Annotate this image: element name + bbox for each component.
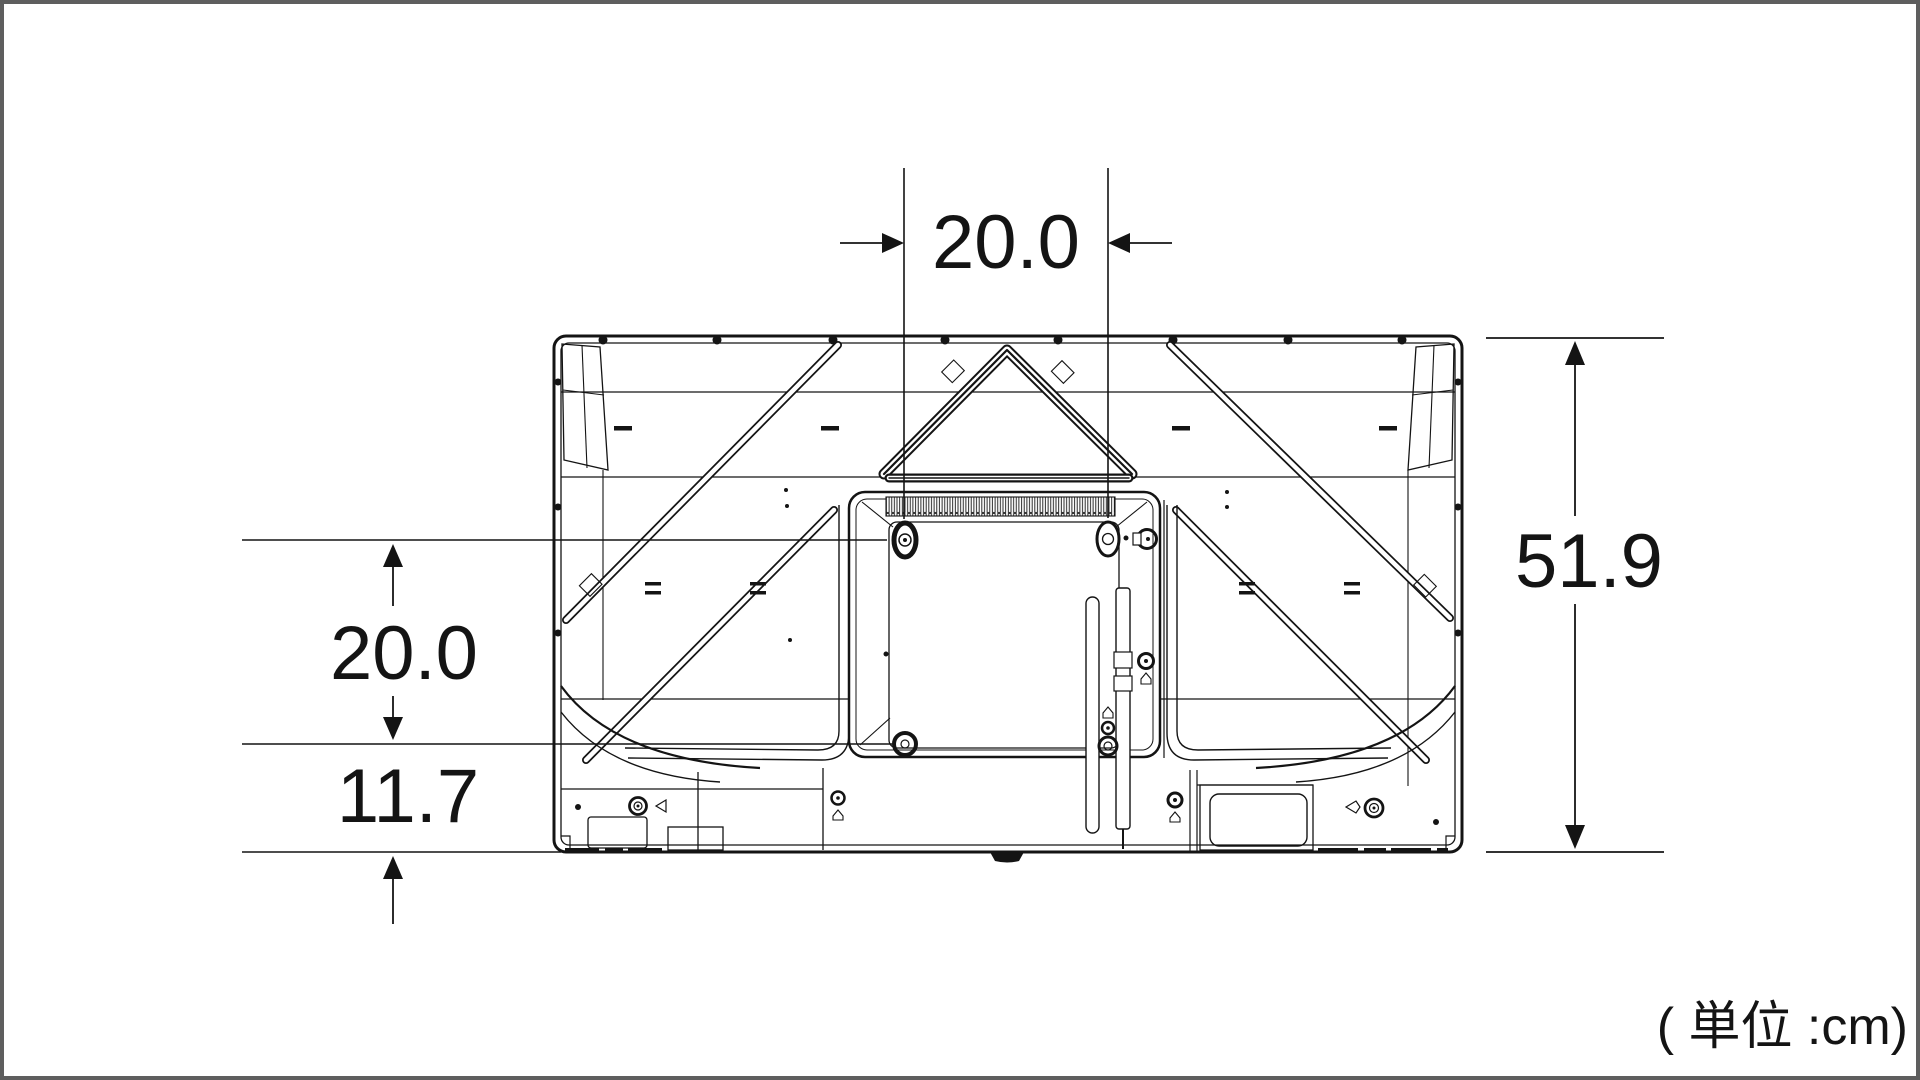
small-dot [1124,536,1129,541]
bay-screw-channel [1168,793,1182,822]
dim-value-panel-height: 51.9 [1515,519,1663,604]
bottom-foot [990,852,1024,863]
tv-rear-dimension-diagram: 20.0 20.0 11.7 51.9 ( 単位 :cm) [4,4,1916,1076]
dim-left-group: 20.0 11.7 [242,540,892,924]
rib-right-inner [1176,510,1426,760]
corner-wedge-left [562,344,608,470]
arrowhead-down-icon [383,717,403,740]
bay-label-plate [588,817,647,848]
arrowhead-down-icon [1565,825,1585,849]
dim-value-vesa-width: 20.0 [932,200,1080,285]
bay-panel-small [668,827,723,850]
arrowhead-left-icon [1108,233,1130,253]
tv-rear-panel [554,336,1462,863]
dim-value-bottom-offset: 11.7 [337,754,479,839]
dim-value-vesa-vertical: 20.0 [330,611,478,696]
bay-screw-right [1346,799,1383,817]
right-inner-bezel [1167,505,1391,760]
connector-panel [1200,785,1313,850]
bay-dot-left [575,804,581,810]
bay-dot-right [1433,819,1439,825]
rib-left-outer [566,345,838,620]
dim-panel-height: 51.9 [1486,338,1664,852]
dim-bottom-offset: 11.7 [337,754,479,924]
unit-label: ( 単位 :cm) [1657,998,1908,1056]
dim-vesa-vertical: 20.0 [330,544,478,740]
corner-wedge-right [1408,344,1454,470]
rib-left-inner [586,510,834,760]
vent-grille [886,497,1115,516]
diagram-canvas: 20.0 20.0 11.7 51.9 ( 単位 :cm) [0,0,1920,1080]
bottom-bay [575,768,1439,863]
bay-screw-left [630,798,667,815]
left-inner-bezel [625,505,849,760]
bay-screw-center [832,792,845,821]
arrowhead-right-icon [882,233,904,253]
rib-center-chevron [884,350,1132,474]
